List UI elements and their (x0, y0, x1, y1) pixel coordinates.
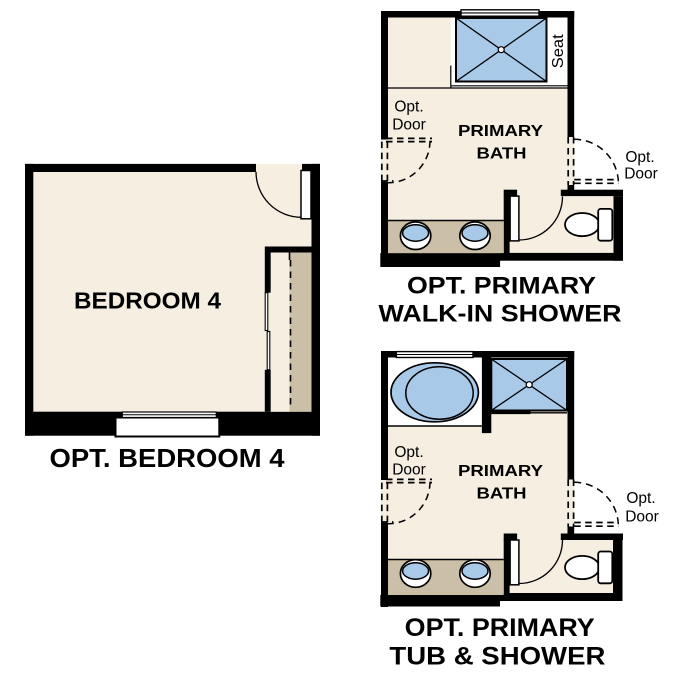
svg-text:Opt.: Opt. (394, 444, 423, 461)
svg-text:Door: Door (392, 117, 426, 134)
svg-text:OPT. PRIMARY: OPT. PRIMARY (407, 273, 596, 300)
svg-text:Door: Door (624, 165, 658, 182)
svg-text:BATH: BATH (477, 486, 527, 503)
svg-text:BATH: BATH (477, 146, 527, 163)
svg-text:Opt.: Opt. (626, 490, 655, 507)
svg-text:TUB & SHOWER: TUB & SHOWER (389, 643, 605, 671)
svg-text:Seat: Seat (550, 34, 567, 69)
svg-text:OPT. BEDROOM 4: OPT. BEDROOM 4 (50, 443, 286, 473)
svg-text:Opt.: Opt. (394, 99, 423, 116)
svg-text:Door: Door (392, 461, 426, 478)
svg-text:Opt.: Opt. (625, 149, 654, 166)
svg-text:Door: Door (625, 508, 659, 525)
svg-text:OPT. PRIMARY: OPT. PRIMARY (405, 614, 595, 642)
svg-text:PRIMARY: PRIMARY (458, 123, 544, 140)
svg-text:WALK-IN SHOWER: WALK-IN SHOWER (379, 300, 622, 327)
svg-text:PRIMARY: PRIMARY (458, 463, 544, 480)
svg-text:BEDROOM 4: BEDROOM 4 (74, 287, 221, 313)
